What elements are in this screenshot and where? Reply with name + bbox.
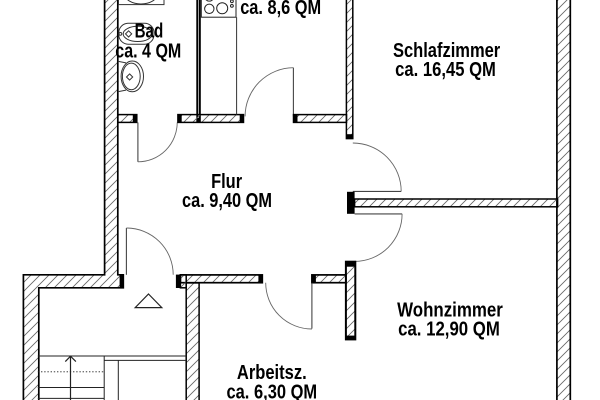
svg-text:ca. 9,40 QM: ca. 9,40 QM <box>182 190 272 212</box>
svg-text:Bad: Bad <box>135 20 164 42</box>
svg-text:ca. 16,45 QM: ca. 16,45 QM <box>395 59 496 81</box>
svg-text:ca. 12,90 QM: ca. 12,90 QM <box>398 319 500 341</box>
svg-text:ca. 6,30 QM: ca. 6,30 QM <box>227 382 318 400</box>
svg-text:ca. 4 QM: ca. 4 QM <box>115 40 181 62</box>
svg-text:ca. 8,6 QM: ca. 8,6 QM <box>240 0 321 19</box>
